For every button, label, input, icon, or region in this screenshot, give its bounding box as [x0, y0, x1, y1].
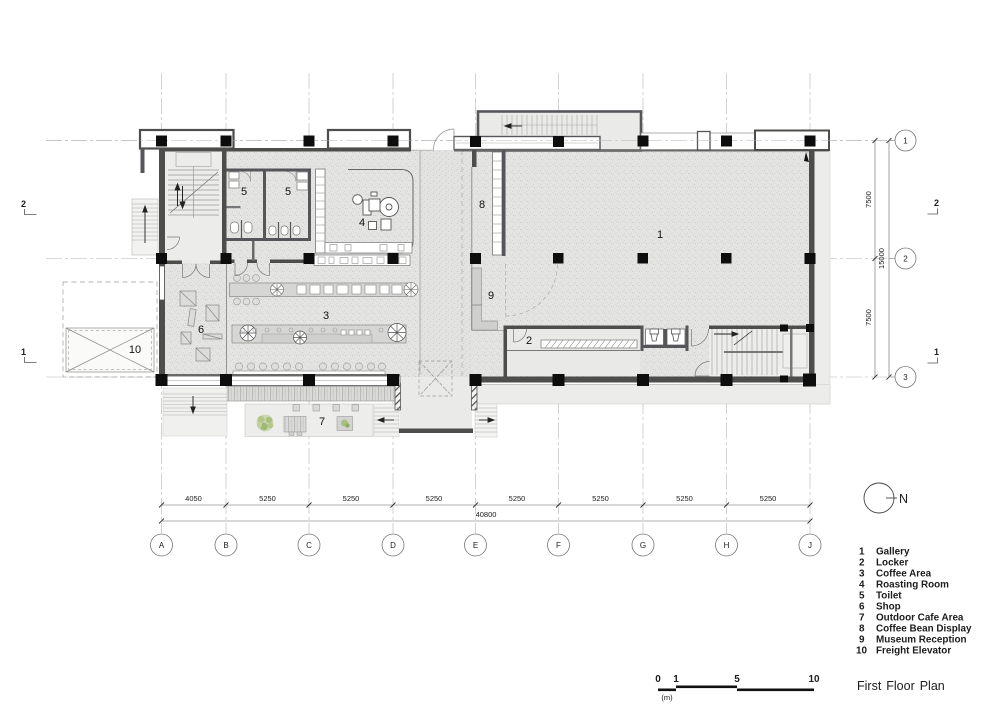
svg-text:D: D — [390, 541, 396, 550]
svg-text:4: 4 — [859, 580, 865, 591]
svg-text:A: A — [159, 541, 165, 550]
svg-text:8: 8 — [479, 199, 485, 211]
svg-text:H: H — [724, 541, 730, 550]
svg-text:7500: 7500 — [864, 191, 873, 208]
svg-text:Shop: Shop — [876, 602, 901, 613]
svg-text:Freight Elevator: Freight Elevator — [876, 646, 951, 657]
svg-text:7500: 7500 — [864, 309, 873, 326]
svg-text:J: J — [808, 541, 812, 550]
svg-text:Locker: Locker — [876, 558, 909, 569]
svg-text:1: 1 — [934, 347, 939, 357]
svg-text:3: 3 — [903, 373, 908, 382]
svg-text:1: 1 — [859, 547, 865, 558]
svg-text:2: 2 — [859, 558, 865, 569]
svg-text:Gallery: Gallery — [876, 547, 910, 558]
svg-text:First Floor Plan: First Floor Plan — [857, 679, 945, 693]
svg-text:E: E — [473, 541, 478, 550]
svg-text:10: 10 — [808, 674, 820, 685]
svg-text:2: 2 — [21, 199, 26, 209]
svg-text:N: N — [899, 492, 908, 506]
svg-text:15000: 15000 — [877, 248, 886, 269]
svg-text:B: B — [223, 541, 228, 550]
svg-text:5250: 5250 — [592, 494, 609, 503]
svg-text:10: 10 — [856, 646, 867, 657]
svg-text:1: 1 — [21, 347, 26, 357]
svg-text:6: 6 — [859, 602, 865, 613]
svg-text:F: F — [556, 541, 561, 550]
svg-text:3: 3 — [323, 310, 329, 322]
svg-text:40800: 40800 — [476, 510, 497, 519]
svg-text:1: 1 — [657, 229, 663, 241]
svg-text:2: 2 — [934, 198, 939, 208]
svg-text:3: 3 — [859, 569, 865, 580]
svg-text:5250: 5250 — [259, 494, 276, 503]
svg-text:5250: 5250 — [343, 494, 360, 503]
svg-text:2: 2 — [526, 335, 532, 347]
svg-text:G: G — [640, 541, 646, 550]
svg-text:9: 9 — [488, 290, 494, 302]
svg-text:Toilet: Toilet — [876, 591, 902, 602]
svg-text:5: 5 — [859, 591, 865, 602]
svg-text:Museum Reception: Museum Reception — [876, 635, 967, 646]
svg-text:1: 1 — [673, 674, 679, 685]
svg-text:(m): (m) — [661, 693, 673, 702]
svg-text:Coffee Bean Display: Coffee Bean Display — [876, 624, 972, 635]
svg-text:5: 5 — [241, 186, 247, 198]
svg-text:10: 10 — [129, 344, 141, 356]
svg-text:4: 4 — [359, 217, 365, 229]
svg-text:8: 8 — [859, 624, 865, 635]
svg-text:5: 5 — [285, 186, 291, 198]
svg-text:4050: 4050 — [185, 494, 202, 503]
svg-text:C: C — [306, 541, 312, 550]
svg-text:5250: 5250 — [760, 494, 777, 503]
svg-text:5250: 5250 — [426, 494, 443, 503]
svg-text:5250: 5250 — [509, 494, 526, 503]
svg-text:5: 5 — [734, 674, 740, 685]
svg-text:Coffee Area: Coffee Area — [876, 569, 932, 580]
svg-text:5250: 5250 — [676, 494, 693, 503]
svg-text:7: 7 — [319, 416, 325, 428]
svg-text:1: 1 — [903, 137, 908, 146]
svg-text:Roasting Room: Roasting Room — [876, 580, 949, 591]
svg-text:6: 6 — [198, 324, 204, 336]
svg-text:Outdoor Cafe Area: Outdoor Cafe Area — [876, 613, 964, 624]
svg-text:0: 0 — [655, 674, 661, 685]
svg-text:9: 9 — [859, 635, 865, 646]
svg-text:7: 7 — [859, 613, 865, 624]
svg-text:2: 2 — [903, 255, 908, 264]
